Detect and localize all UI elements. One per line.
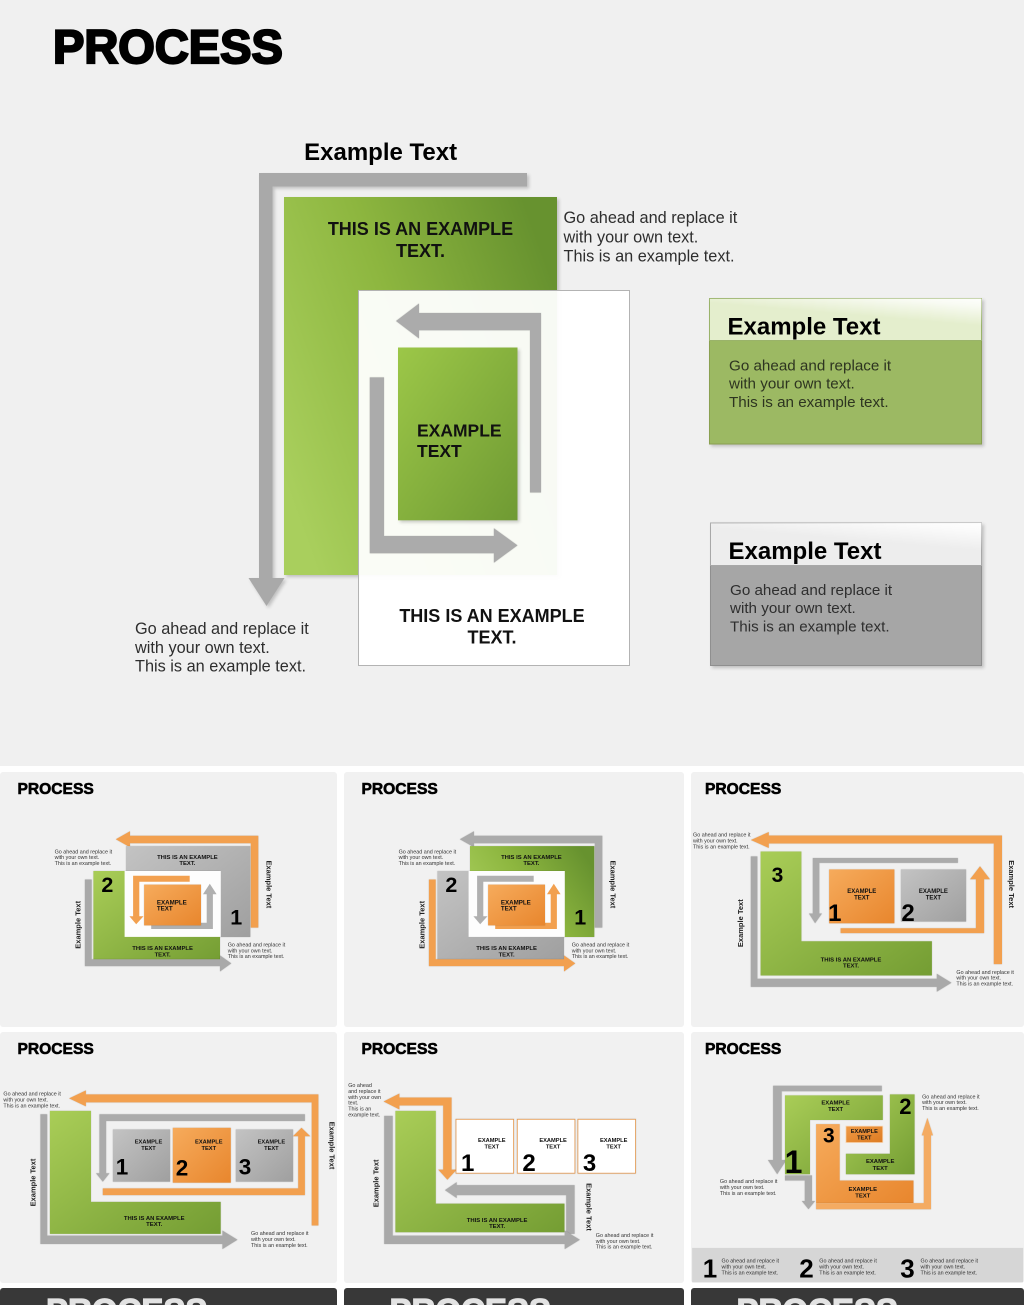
svg-text:PROCESS: PROCESS — [361, 781, 437, 798]
svg-text:2: 2 — [799, 1253, 813, 1282]
svg-text:Example Text: Example Text — [728, 314, 881, 341]
svg-text:1: 1 — [784, 1144, 802, 1180]
svg-text:This is an example text.: This is an example text. — [819, 1270, 876, 1276]
svg-text:This is an example text.: This is an example text. — [228, 954, 285, 960]
svg-text:EXAMPLE: EXAMPLE — [258, 1140, 286, 1146]
svg-text:Example Text: Example Text — [584, 1183, 593, 1231]
svg-text:TEXT.: TEXT. — [489, 1224, 505, 1230]
svg-text:2: 2 — [899, 1094, 911, 1119]
svg-text:TEXT.: TEXT. — [523, 861, 539, 867]
svg-text:This is an example text.: This is an example text. — [693, 845, 750, 851]
svg-text:PROCESS: PROCESS — [18, 1041, 94, 1058]
svg-text:3: 3 — [823, 1125, 835, 1148]
svg-text:This is an example text.: This is an example text. — [729, 394, 889, 411]
svg-text:This is an example text.: This is an example text. — [730, 618, 890, 635]
svg-text:TEXT.: TEXT. — [146, 1222, 162, 1228]
svg-text:EXAMPLE: EXAMPLE — [599, 1138, 627, 1144]
svg-text:EXAMPLE: EXAMPLE — [865, 1159, 894, 1165]
svg-text:Example Text: Example Text — [729, 538, 882, 565]
svg-text:This is an example text.: This is an example text. — [920, 1270, 977, 1276]
svg-text:EXAMPLE: EXAMPLE — [195, 1140, 223, 1146]
svg-text:TEXT.: TEXT. — [155, 952, 171, 958]
svg-text:with your own text.: with your own text. — [728, 376, 855, 393]
svg-text:This is an example text.: This is an example text. — [398, 861, 455, 867]
svg-text:with your own text.: with your own text. — [563, 228, 699, 246]
svg-text:Example Text: Example Text — [74, 900, 83, 948]
svg-text:3: 3 — [900, 1253, 914, 1282]
svg-text:Go ahead and replace it: Go ahead and replace it — [730, 582, 893, 599]
svg-text:TEXT: TEXT — [545, 1145, 560, 1151]
svg-text:TEXT: TEXT — [606, 1145, 621, 1151]
svg-text:THIS IS AN EXAMPLE: THIS IS AN EXAMPLE — [501, 855, 562, 861]
svg-text:1: 1 — [702, 1253, 716, 1282]
svg-text:TEXT: TEXT — [500, 906, 516, 913]
svg-text:TEXT.: TEXT. — [396, 241, 445, 261]
svg-text:TEXT.: TEXT. — [179, 861, 195, 867]
svg-text:PROCESS: PROCESS — [361, 1041, 437, 1058]
svg-text:EXAMPLE: EXAMPLE — [848, 1187, 877, 1193]
svg-text:Example Text: Example Text — [1007, 860, 1016, 908]
svg-text:EXAMPLE: EXAMPLE — [417, 421, 502, 441]
svg-text:This is an example text.: This is an example text. — [571, 954, 628, 960]
svg-text:THIS IS AN EXAMPLE: THIS IS AN EXAMPLE — [820, 957, 881, 963]
svg-text:Example Text: Example Text — [417, 900, 426, 948]
svg-text:EXAMPLE: EXAMPLE — [918, 889, 947, 895]
svg-text:2: 2 — [101, 873, 113, 897]
svg-text:PROCESS: PROCESS — [53, 20, 283, 73]
svg-text:TEXT.: TEXT. — [842, 964, 858, 970]
svg-text:Example Text: Example Text — [29, 1158, 38, 1206]
svg-text:1: 1 — [116, 1155, 129, 1180]
svg-text:TEXT: TEXT — [484, 1145, 499, 1151]
svg-text:TEXT: TEXT — [855, 1193, 870, 1199]
svg-text:Example Text: Example Text — [265, 860, 274, 908]
svg-text:3: 3 — [771, 864, 783, 887]
svg-text:THIS IS AN EXAMPLE: THIS IS AN EXAMPLE — [399, 606, 584, 626]
svg-text:TEXT: TEXT — [828, 1107, 843, 1113]
svg-text:1: 1 — [828, 900, 841, 927]
svg-text:Go ahead and replace it: Go ahead and replace it — [135, 620, 309, 638]
svg-text:THIS IS AN EXAMPLE: THIS IS AN EXAMPLE — [157, 855, 218, 861]
svg-text:Example Text: Example Text — [371, 1159, 380, 1207]
svg-text:2: 2 — [522, 1150, 535, 1177]
svg-text:This is an example text.: This is an example text. — [721, 1270, 778, 1276]
svg-text:EXAMPLE: EXAMPLE — [478, 1138, 506, 1144]
svg-text:1: 1 — [230, 906, 242, 930]
svg-text:Example Text: Example Text — [328, 1122, 337, 1170]
svg-text:THIS IS AN EXAMPLE: THIS IS AN EXAMPLE — [466, 1218, 527, 1224]
svg-text:THIS IS AN EXAMPLE: THIS IS AN EXAMPLE — [476, 946, 537, 952]
svg-text:TEXT: TEXT — [872, 1166, 887, 1172]
svg-text:TEXT: TEXT — [854, 895, 870, 901]
svg-text:TEXT: TEXT — [925, 895, 941, 901]
svg-text:Example Text: Example Text — [608, 860, 617, 908]
svg-text:example text.: example text. — [348, 1113, 380, 1119]
svg-text:Example Text: Example Text — [304, 139, 457, 166]
svg-text:This is an example text.: This is an example text. — [135, 658, 306, 676]
svg-text:PROCESS: PROCESS — [705, 781, 781, 798]
svg-text:2: 2 — [176, 1156, 189, 1181]
svg-text:This is an example text.: This is an example text. — [595, 1245, 652, 1251]
svg-text:EXAMPLE: EXAMPLE — [539, 1138, 567, 1144]
svg-text:This is an example text.: This is an example text. — [251, 1243, 308, 1249]
svg-text:EXAMPLE: EXAMPLE — [135, 1140, 163, 1146]
svg-text:2: 2 — [445, 873, 457, 897]
svg-text:TEXT: TEXT — [417, 441, 462, 461]
svg-text:PROCESS: PROCESS — [705, 1041, 781, 1058]
svg-text:TEXT: TEXT — [857, 1136, 872, 1142]
svg-text:This is an example text.: This is an example text. — [564, 248, 735, 266]
svg-text:TEXT: TEXT — [264, 1146, 279, 1152]
svg-text:TEXT.: TEXT. — [467, 628, 516, 648]
svg-text:TEXT: TEXT — [157, 906, 173, 913]
svg-text:TEXT: TEXT — [141, 1146, 156, 1152]
svg-text:2: 2 — [901, 900, 914, 927]
svg-text:Example Text: Example Text — [736, 899, 745, 947]
svg-text:This is an example text.: This is an example text. — [922, 1106, 979, 1112]
svg-text:THIS IS AN EXAMPLE: THIS IS AN EXAMPLE — [124, 1216, 185, 1222]
svg-text:Go ahead and replace it: Go ahead and replace it — [564, 209, 738, 227]
svg-text:EXAMPLE: EXAMPLE — [821, 1100, 850, 1106]
svg-text:THIS IS AN EXAMPLE: THIS IS AN EXAMPLE — [328, 219, 513, 239]
svg-text:This is an example text.: This is an example text. — [55, 861, 112, 867]
svg-text:1: 1 — [461, 1150, 474, 1177]
svg-text:This is an example text.: This is an example text. — [3, 1103, 60, 1109]
svg-text:with your own text.: with your own text. — [729, 600, 856, 617]
svg-text:THIS IS AN EXAMPLE: THIS IS AN EXAMPLE — [132, 946, 193, 952]
svg-text:TEXT: TEXT — [202, 1146, 217, 1152]
svg-text:PROCESS: PROCESS — [18, 781, 94, 798]
svg-text:with your own text.: with your own text. — [134, 639, 270, 657]
svg-text:1: 1 — [574, 906, 586, 930]
svg-text:Go ahead and replace it: Go ahead and replace it — [729, 358, 892, 375]
svg-text:EXAMPLE: EXAMPLE — [847, 889, 876, 895]
svg-text:TEXT.: TEXT. — [498, 952, 514, 958]
svg-text:This is an example text.: This is an example text. — [719, 1191, 776, 1197]
svg-text:3: 3 — [239, 1155, 252, 1180]
svg-text:3: 3 — [582, 1150, 595, 1177]
svg-text:EXAMPLE: EXAMPLE — [850, 1129, 877, 1135]
svg-text:This is an example text.: This is an example text. — [956, 982, 1013, 988]
